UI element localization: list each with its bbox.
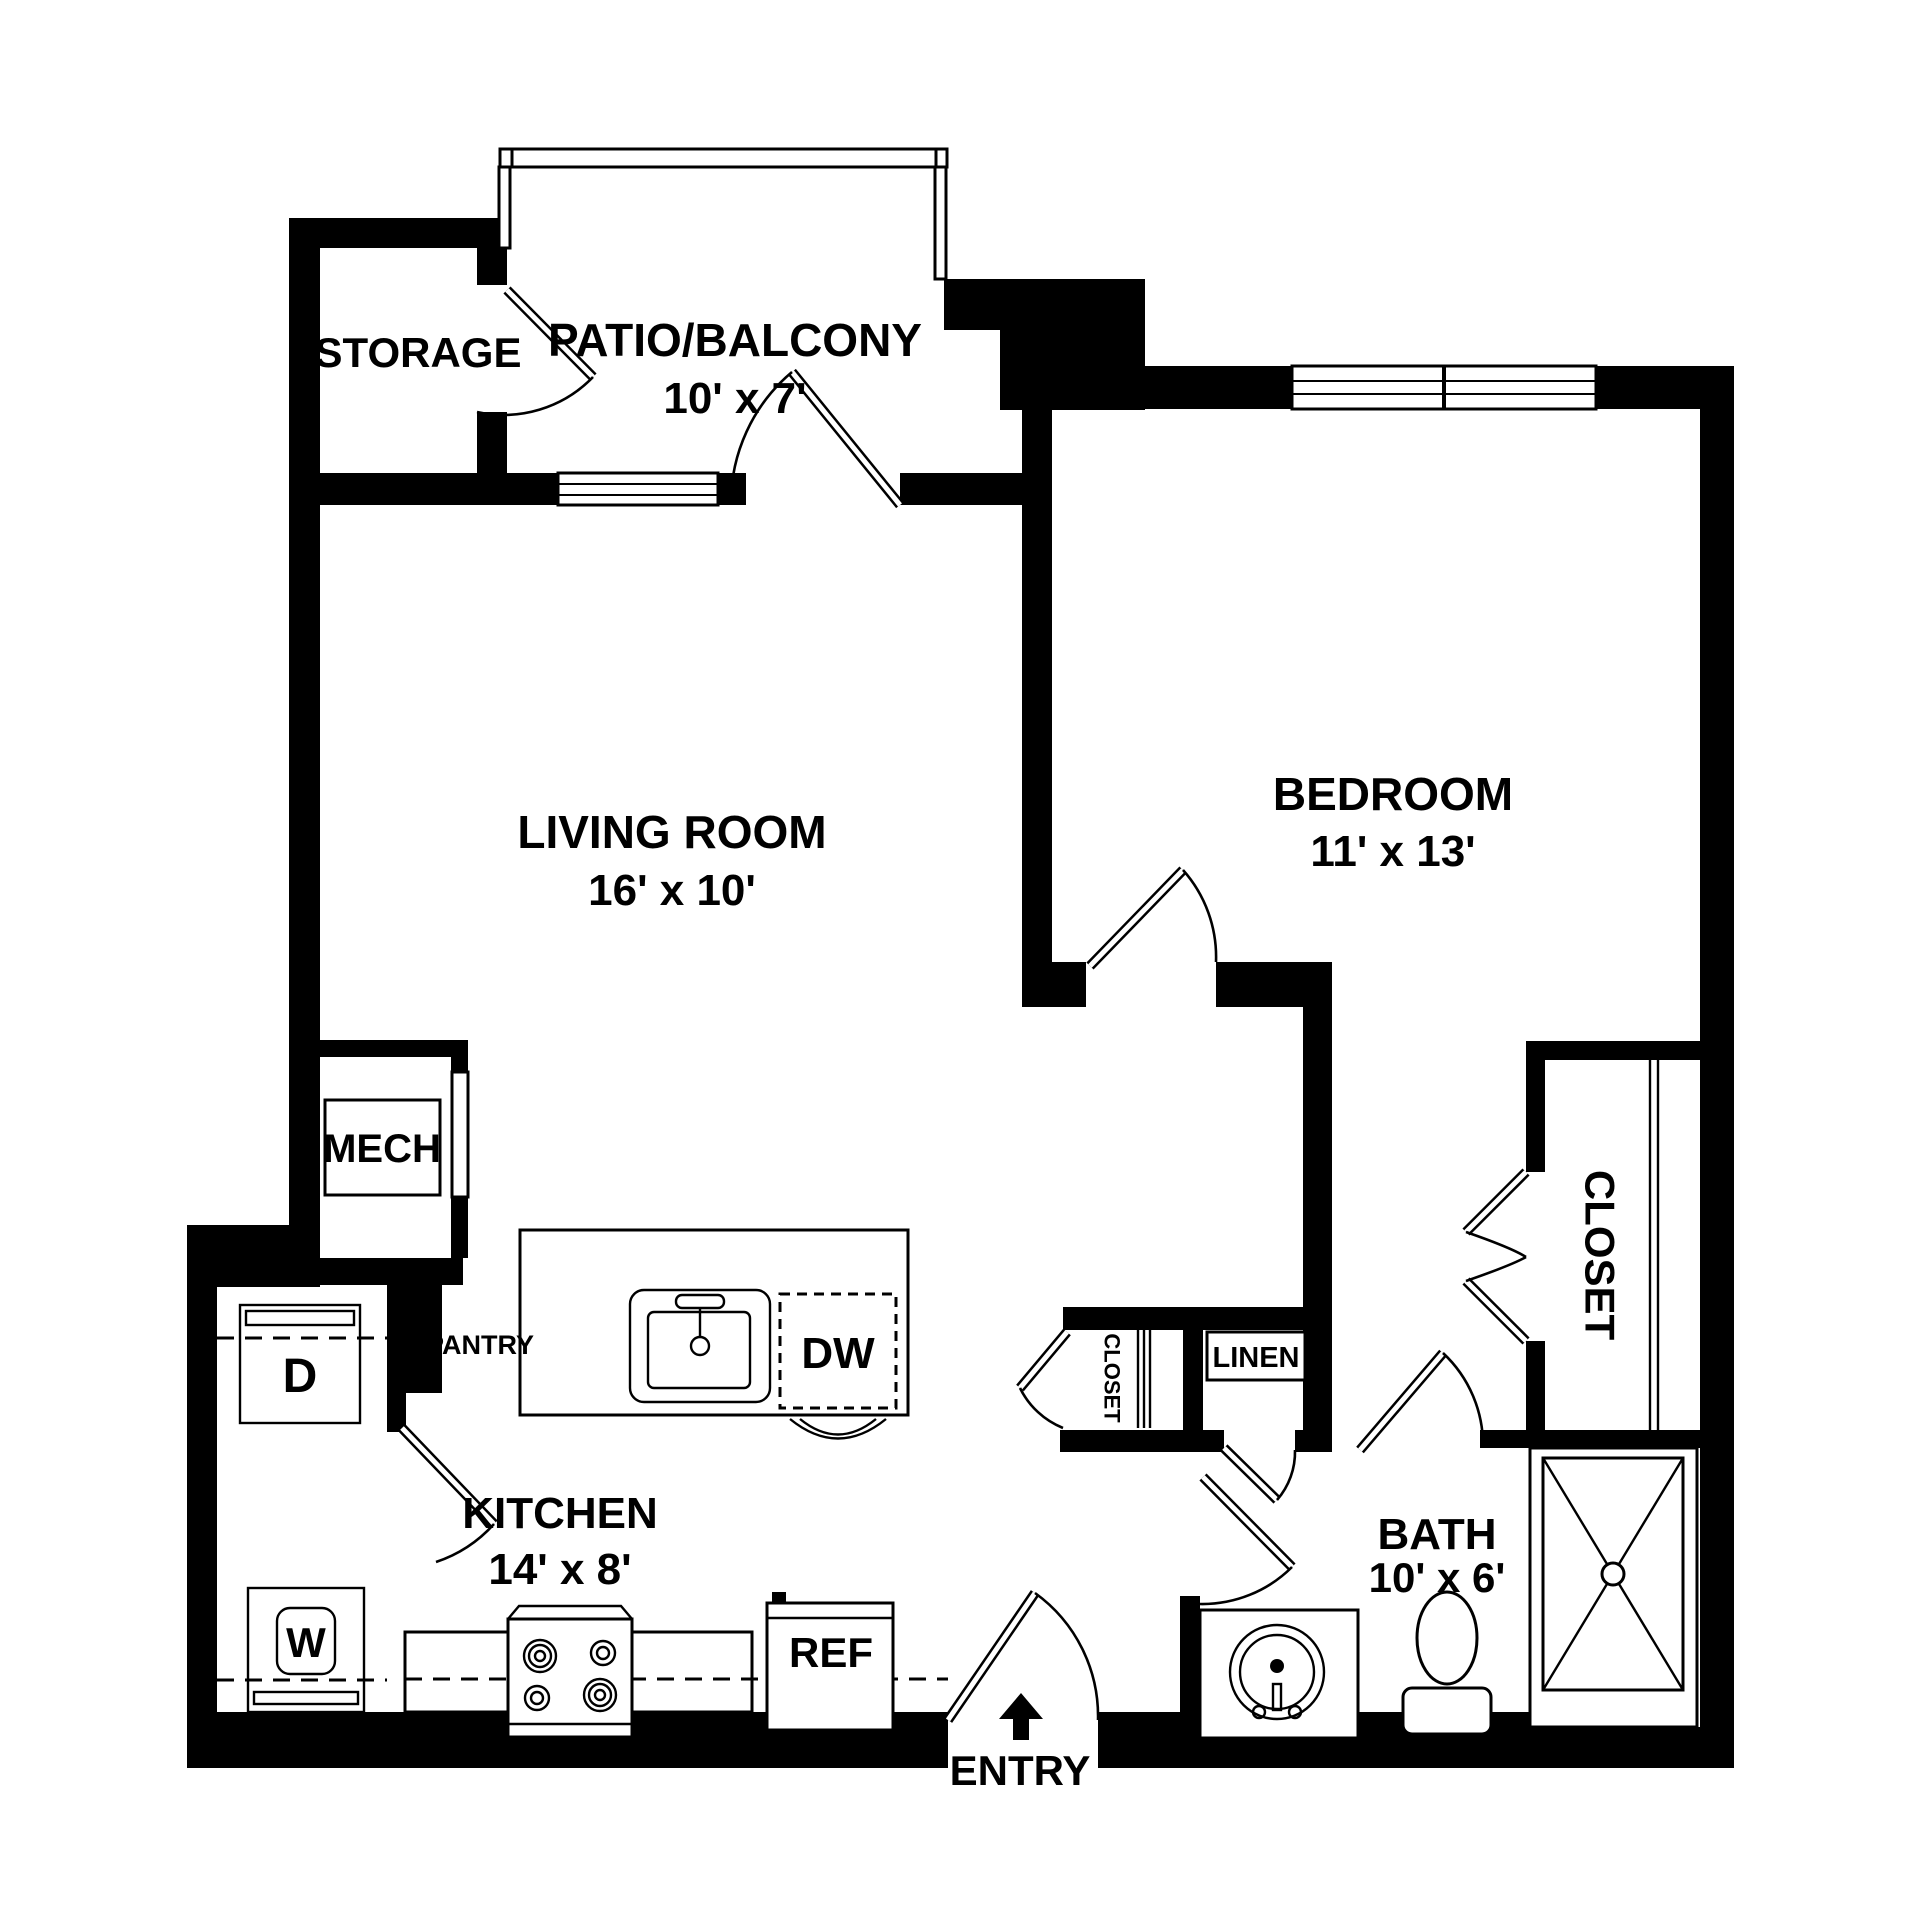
wall-bedroom-topleft-chunk <box>1000 279 1145 410</box>
hall-closet-door <box>1020 1332 1067 1428</box>
wall-living-top-c <box>900 473 1022 505</box>
linen-door <box>1224 1448 1295 1500</box>
refrigerator-label: REF <box>789 1629 873 1676</box>
wall-linen-left-jamb <box>1183 1430 1224 1452</box>
floor-plan-svg: PATIO/BALCONY 10' x 7' STORAGE BEDROOM 1… <box>0 0 1920 1920</box>
wall-left-lower <box>187 1225 217 1768</box>
entry-arrow-icon <box>999 1693 1043 1740</box>
wall-closet-left-b <box>1526 1341 1545 1448</box>
stove <box>508 1606 632 1737</box>
bedroom-window <box>1292 366 1596 409</box>
bedroom-closet-rod <box>1650 1060 1658 1430</box>
mech-label: MECH <box>323 1127 441 1171</box>
kitchen-label: KITCHEN <box>462 1489 658 1538</box>
wall-living-top-a <box>289 473 558 505</box>
bedroom-closet-bifold-doors <box>1466 1172 1526 1341</box>
hall-closet-slider-lines <box>1138 1330 1150 1428</box>
bedroom-closet-label: CLOSET <box>1577 1170 1624 1341</box>
patio-wall-right <box>935 167 946 279</box>
bath-vanity <box>1200 1610 1358 1738</box>
bedroom-label: BEDROOM <box>1273 768 1513 820</box>
pantry-label: PANTRY <box>426 1330 534 1360</box>
living-room-label: LIVING ROOM <box>517 806 826 858</box>
wall-laundry-jamb <box>387 1393 406 1432</box>
wall-bedroom-door-notch <box>1052 962 1086 1007</box>
wall-right <box>1700 366 1734 1768</box>
dryer-label: D <box>283 1350 318 1403</box>
wall-mech-top <box>318 1040 463 1057</box>
kitchen-dims: 14' x 8' <box>488 1545 631 1594</box>
wall-closet-top <box>1526 1041 1702 1060</box>
washer-label: W <box>286 1619 326 1666</box>
patio-railing <box>500 149 947 167</box>
walls <box>187 218 1734 1768</box>
fixtures <box>217 1100 1697 1740</box>
patio-label: PATIO/BALCONY <box>548 314 922 366</box>
wall-mech-jamb-bottom <box>451 1197 468 1258</box>
dishwasher-label: DW <box>801 1329 875 1378</box>
wall-mech-jamb-top <box>451 1040 468 1072</box>
wall-under-linen <box>1295 1430 1332 1452</box>
patio-wall-left <box>499 167 510 248</box>
wall-closet-left-a <box>1526 1041 1545 1172</box>
bath-dims: 10' x 6' <box>1369 1554 1506 1601</box>
hall-closet-label: CLOSET <box>1100 1333 1125 1423</box>
wall-bedroom-top-b <box>1596 366 1704 409</box>
bath-label: BATH <box>1378 1510 1497 1559</box>
bedroom-door <box>1090 870 1216 966</box>
wall-storage-top <box>289 218 507 248</box>
bedroom-dims: 11' x 13' <box>1310 827 1475 876</box>
wall-bedroom-top-a <box>1145 366 1292 409</box>
shower <box>1530 1448 1697 1727</box>
living-room-dims: 16' x 10' <box>588 866 756 915</box>
living-room-window <box>558 473 718 505</box>
wall-vestibule-stub <box>1480 1430 1526 1448</box>
mech-door-panel <box>452 1072 468 1197</box>
wall-hallcloset-bottom <box>1060 1430 1183 1452</box>
hallway-vestibule-door <box>1360 1353 1483 1450</box>
floor-plan-canvas: PATIO/BALCONY 10' x 7' STORAGE BEDROOM 1… <box>0 0 1920 1920</box>
wall-bath-left <box>1180 1596 1200 1712</box>
wall-closet-bottom <box>1520 1430 1702 1448</box>
wall-mech-bottom <box>318 1258 463 1285</box>
wall-bedroom-left <box>1022 330 1052 1007</box>
storage-label: STORAGE <box>315 329 522 376</box>
labels: PATIO/BALCONY 10' x 7' STORAGE BEDROOM 1… <box>283 314 1624 1794</box>
entry-label: ENTRY <box>950 1747 1091 1794</box>
linen-label: LINEN <box>1213 1342 1300 1374</box>
toilet <box>1403 1592 1491 1734</box>
patio-dims: 10' x 7' <box>663 374 806 423</box>
wall-hall-vertical <box>1303 962 1332 1430</box>
